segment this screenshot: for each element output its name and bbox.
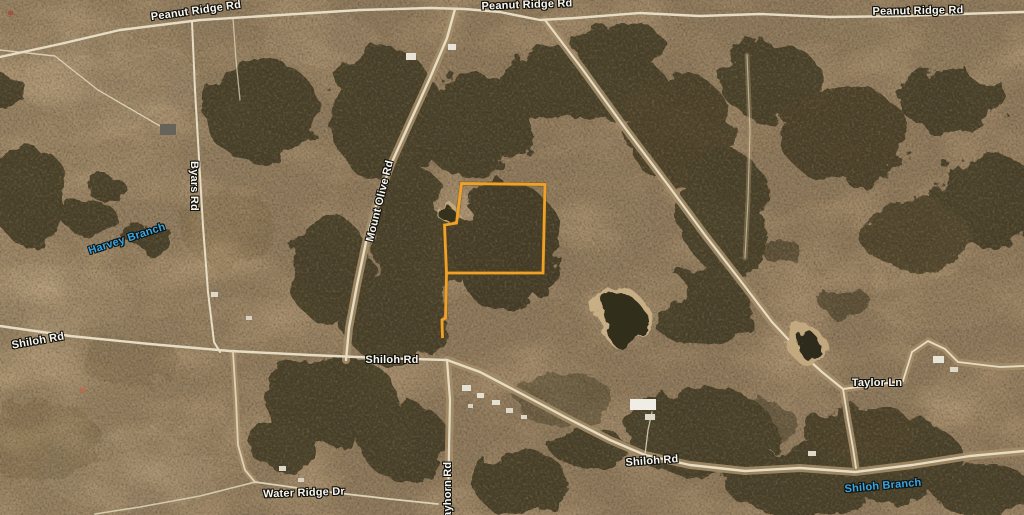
map-viewport[interactable]: Peanut Ridge Rd Peanut Ridge Rd Peanut R… (0, 0, 1024, 515)
satellite-imagery (0, 0, 1024, 515)
